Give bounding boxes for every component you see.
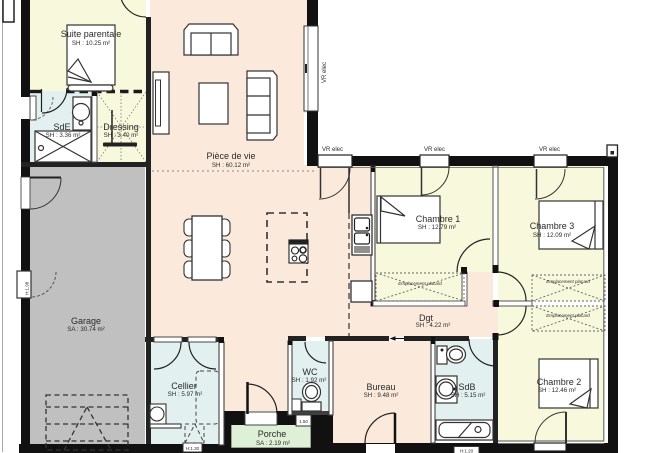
svg-text:SH : 4.22 m²: SH : 4.22 m² [416, 322, 451, 329]
svg-text:Cellier: Cellier [171, 381, 197, 391]
svg-text:Pièce de vie: Pièce de vie [206, 151, 255, 161]
svg-text:H:1.20: H:1.20 [460, 449, 474, 453]
svg-text:H:1.98: H:1.98 [25, 281, 30, 295]
svg-text:Emplacement placard: Emplacement placard [546, 279, 590, 284]
svg-text:VR elec: VR elec [322, 147, 343, 153]
svg-text:SH : 5.15 m²: SH : 5.15 m² [451, 392, 486, 399]
svg-text:SH : 60.12 m²: SH : 60.12 m² [212, 162, 250, 169]
svg-text:SdE: SdE [53, 122, 70, 132]
svg-text:Emplacement placard: Emplacement placard [546, 313, 590, 318]
svg-text:Chambre 1: Chambre 1 [416, 214, 461, 224]
svg-text:SH : 5.97 m²: SH : 5.97 m² [168, 391, 203, 398]
svg-text:H:1.30: H:1.30 [186, 446, 200, 451]
svg-text:VR elec: VR elec [322, 62, 328, 83]
svg-text:Chambre 3: Chambre 3 [530, 221, 575, 231]
svg-text:SH : 3.36 m²: SH : 3.36 m² [46, 132, 81, 139]
svg-text:SH : 1.92 m²: SH : 1.92 m² [292, 377, 327, 384]
svg-text:SH : 3.40 m²: SH : 3.40 m² [104, 132, 139, 139]
svg-text:SH : 12.09 m²: SH : 12.09 m² [533, 232, 571, 239]
svg-text:SA : 2.19 m²: SA : 2.19 m² [256, 440, 290, 447]
svg-text:SdB: SdB [458, 382, 475, 392]
svg-text:Porche: Porche [258, 429, 287, 439]
svg-text:SH : 10.25 m²: SH : 10.25 m² [72, 40, 110, 47]
svg-text:SH : 12.79 m²: SH : 12.79 m² [418, 224, 456, 231]
svg-text:Chambre 2: Chambre 2 [537, 377, 582, 387]
svg-text:SA : 30.74 m²: SA : 30.74 m² [67, 326, 105, 333]
svg-text:WC: WC [303, 367, 318, 377]
svg-text:VR elec: VR elec [539, 147, 560, 153]
svg-text:Garage: Garage [71, 316, 101, 326]
svg-text:SH : 9.48 m²: SH : 9.48 m² [364, 392, 399, 399]
svg-text:1.50: 1.50 [299, 419, 308, 424]
svg-text:Bureau: Bureau [366, 382, 395, 392]
svg-text:SH : 12.46 m²: SH : 12.46 m² [538, 387, 576, 394]
svg-text:Emplacement placard: Emplacement placard [398, 281, 442, 286]
svg-text:VR elec: VR elec [424, 147, 445, 153]
svg-text:Suite parentale: Suite parentale [61, 29, 122, 39]
svg-text:Dressing: Dressing [103, 122, 139, 132]
